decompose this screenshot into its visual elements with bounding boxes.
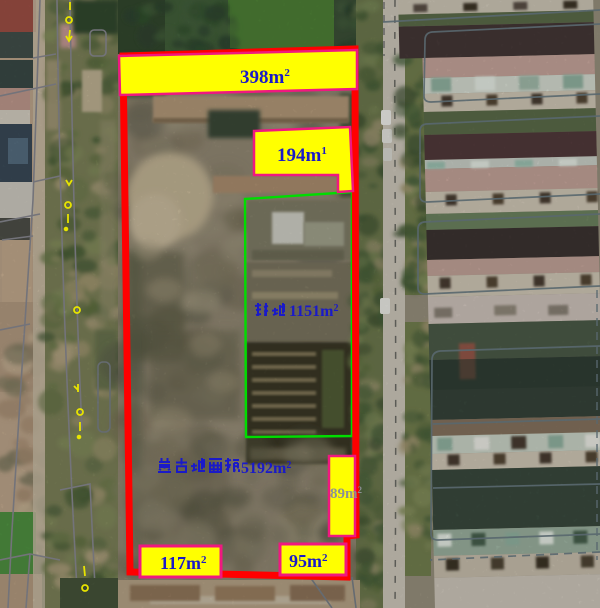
- svg-text:398m2: 398m2: [240, 67, 290, 88]
- svg-text:194m1: 194m1: [277, 145, 327, 166]
- svg-text:1151m2: 1151m2: [289, 303, 338, 320]
- svg-text:117m2: 117m2: [160, 553, 207, 573]
- svg-text:5192m2: 5192m2: [241, 460, 291, 477]
